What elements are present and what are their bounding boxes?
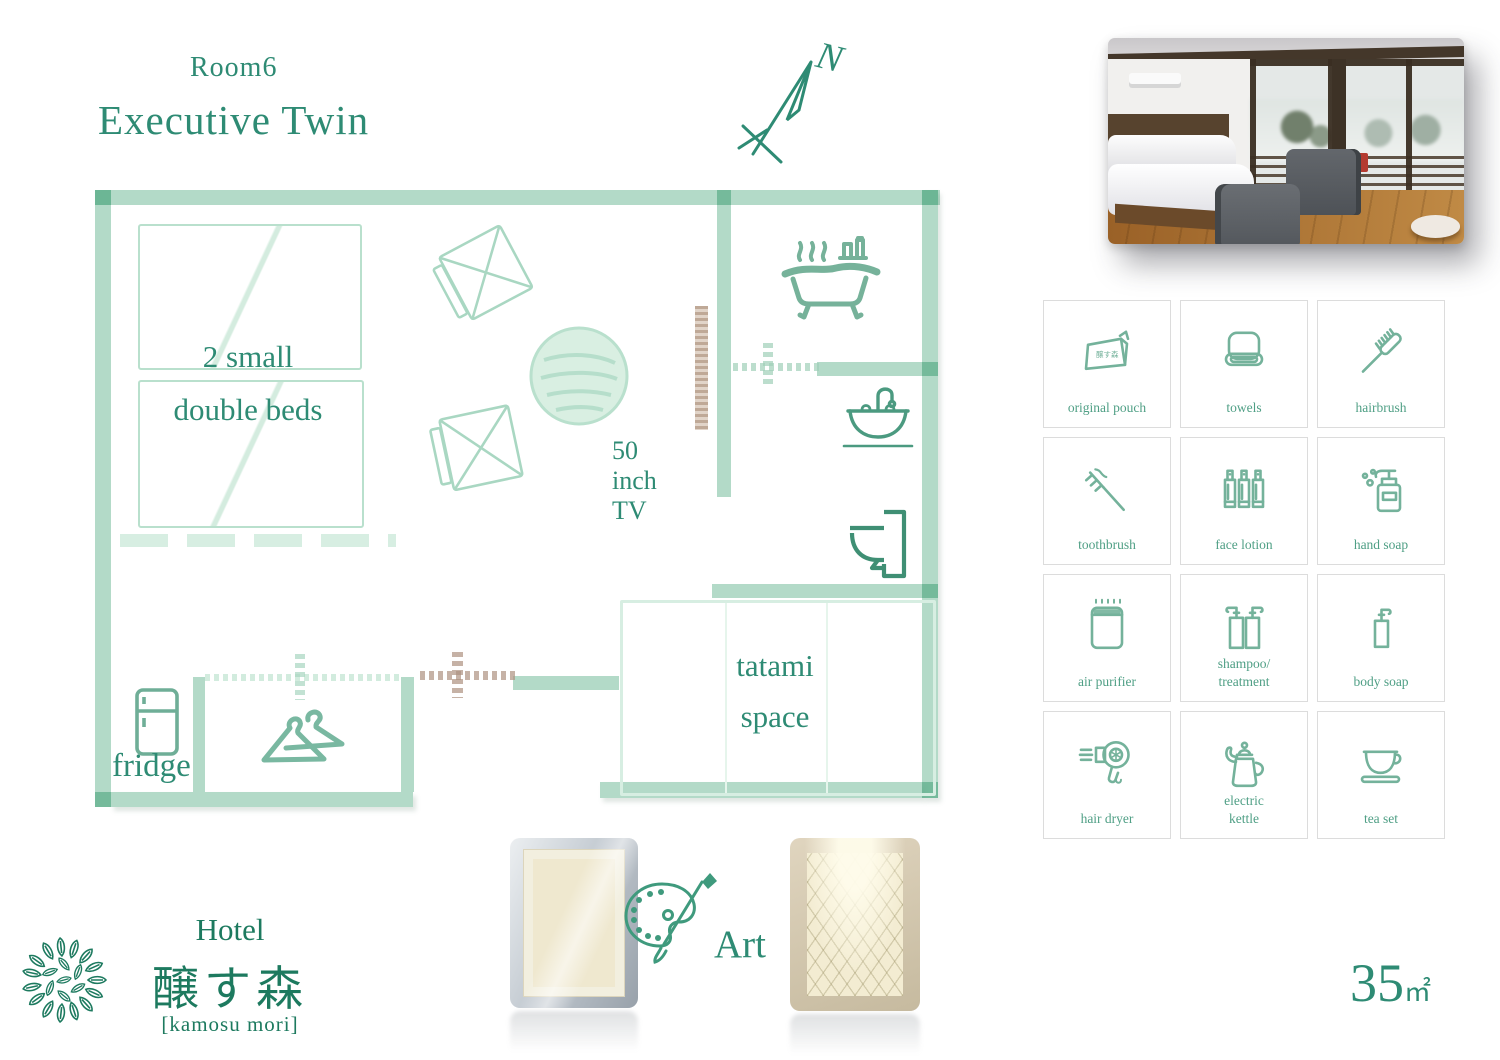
amenity-card-original-pouch: 醸す森 original pouch bbox=[1043, 300, 1171, 428]
closet-door-pivot-scribble bbox=[295, 654, 305, 700]
amenities-grid: 醸す森 original pouch towels bbox=[1043, 300, 1454, 839]
bathtub-icon bbox=[778, 230, 884, 326]
air-purifier-icon bbox=[1075, 595, 1139, 659]
amenity-label: hand soap bbox=[1318, 536, 1444, 554]
room-area: 35㎡ bbox=[1350, 952, 1432, 1014]
amenity-card-tea-set: tea set bbox=[1317, 711, 1445, 839]
art-photo-2 bbox=[790, 838, 920, 1011]
wall-bath-sink-divider bbox=[817, 362, 922, 376]
wall-joint bbox=[95, 792, 111, 807]
amenity-card-hair-dryer: hair dryer bbox=[1043, 711, 1171, 839]
wall-joint bbox=[922, 190, 938, 205]
wall-top bbox=[95, 190, 940, 205]
towel-icon bbox=[1212, 321, 1276, 385]
wall-joint bbox=[95, 190, 111, 205]
room-number: Room6 bbox=[190, 52, 277, 84]
logo-hotel-text: Hotel bbox=[140, 912, 320, 948]
art-photo-2-reflection bbox=[790, 1014, 920, 1060]
amenity-card-shampoo-treatment: shampoo/ treatment bbox=[1180, 574, 1308, 702]
lotion-bottles-icon bbox=[1212, 458, 1276, 522]
window-dashes bbox=[120, 534, 396, 547]
art-photo-2-glow bbox=[790, 838, 920, 1011]
amenity-label: toothbrush bbox=[1044, 536, 1170, 554]
wall-joint bbox=[717, 190, 731, 205]
hotel-logo-leaf-ball bbox=[12, 922, 116, 1042]
logo-romaji-text: [kamosu mori] bbox=[122, 1012, 338, 1037]
amenity-card-hairbrush: hairbrush bbox=[1317, 300, 1445, 428]
amenity-card-towels: towels bbox=[1180, 300, 1308, 428]
room-area-unit: ㎡ bbox=[1404, 977, 1432, 1007]
round-table-icon bbox=[524, 320, 634, 432]
photo-coffee-table bbox=[1411, 215, 1461, 238]
tv-cabinet bbox=[695, 306, 708, 430]
wall-left bbox=[95, 190, 111, 807]
beds-label: 2 small double beds bbox=[128, 330, 368, 437]
amenity-card-electric-kettle: electric kettle bbox=[1180, 711, 1308, 839]
amenity-label: body soap bbox=[1318, 673, 1444, 691]
hand-soap-icon bbox=[1349, 458, 1413, 522]
pouch-icon: 醸す森 bbox=[1075, 321, 1139, 385]
wall-toilet-bottom bbox=[712, 584, 922, 598]
amenity-label: towels bbox=[1181, 399, 1307, 417]
tea-cup-icon bbox=[1349, 732, 1413, 796]
wall-closet-left bbox=[193, 677, 205, 792]
wall-entry-segment bbox=[513, 676, 619, 690]
amenity-card-toothbrush: toothbrush bbox=[1043, 437, 1171, 565]
toilet-icon bbox=[842, 506, 910, 582]
amenity-card-air-purifier: air purifier bbox=[1043, 574, 1171, 702]
photo-ac-unit bbox=[1129, 73, 1181, 88]
wall-bottom-left bbox=[111, 792, 413, 807]
tv-label: 50 inch TV bbox=[612, 436, 657, 526]
amenity-card-face-lotion: face lotion bbox=[1180, 437, 1308, 565]
amenity-label: original pouch bbox=[1044, 399, 1170, 417]
armchair-icon bbox=[421, 389, 540, 508]
hair-dryer-icon bbox=[1075, 732, 1139, 796]
wall-joint bbox=[922, 584, 938, 598]
art-photo-1-reflection bbox=[510, 1011, 638, 1059]
toothbrush-icon bbox=[1075, 458, 1139, 522]
wall-bathroom-divider bbox=[717, 205, 731, 497]
hanger-icon bbox=[256, 698, 348, 772]
shampoo-bottles-icon bbox=[1212, 595, 1276, 659]
compass-n-label: N bbox=[811, 34, 849, 82]
amenity-label: hairbrush bbox=[1318, 399, 1444, 417]
amenity-card-body-soap: body soap bbox=[1317, 574, 1445, 702]
room-type-title: Executive Twin bbox=[98, 96, 369, 144]
entry-door-scribble bbox=[420, 671, 515, 680]
amenity-label: electric kettle bbox=[1181, 792, 1307, 828]
amenity-card-hand-soap: hand soap bbox=[1317, 437, 1445, 565]
hairbrush-icon bbox=[1349, 321, 1413, 385]
amenity-label: air purifier bbox=[1044, 673, 1170, 691]
pouch-brand-text: 醸す森 bbox=[1096, 349, 1119, 359]
tatami-label: tatami space bbox=[620, 640, 930, 742]
fridge-label: fridge bbox=[112, 748, 191, 785]
amenity-label: tea set bbox=[1318, 810, 1444, 828]
wall-joint bbox=[922, 362, 938, 376]
amenity-label: face lotion bbox=[1181, 536, 1307, 554]
logo-kanji-text: 醸す森 bbox=[122, 950, 338, 1019]
amenity-label: shampoo/ treatment bbox=[1181, 655, 1307, 691]
room-area-value: 35 bbox=[1350, 953, 1404, 1013]
bath-door-pivot-scribble bbox=[763, 343, 773, 387]
art-label: Art bbox=[714, 922, 766, 967]
wall-closet-right bbox=[401, 677, 414, 792]
sink-icon bbox=[840, 380, 916, 450]
bath-door-scribble bbox=[733, 363, 819, 371]
entry-door-pivot-scribble bbox=[452, 652, 463, 698]
body-soap-icon bbox=[1349, 595, 1413, 659]
page: Room6 Executive Twin N bbox=[0, 0, 1500, 1060]
kettle-icon bbox=[1212, 732, 1276, 796]
compass-north-icon: N bbox=[733, 26, 857, 178]
room-photo bbox=[1108, 38, 1464, 244]
amenity-label: hair dryer bbox=[1044, 810, 1170, 828]
photo-armchair bbox=[1215, 184, 1300, 244]
